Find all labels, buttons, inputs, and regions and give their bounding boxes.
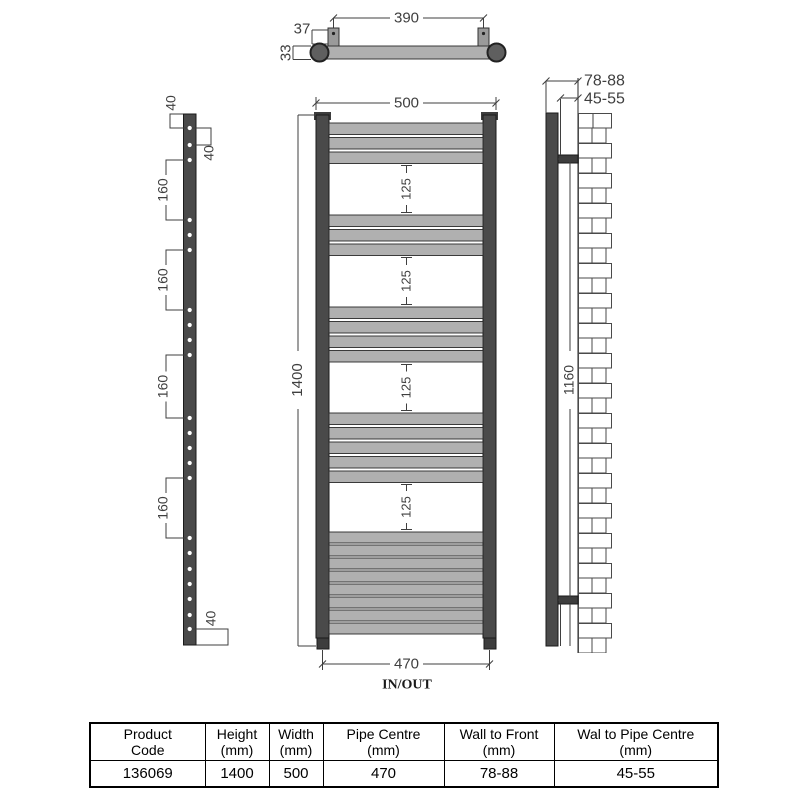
fixing-spacing-label-3: 160 (155, 375, 171, 399)
header-pipe-centre: Pipe Centre(mm) (323, 723, 444, 761)
front-width-dim-label: 500 (394, 95, 419, 112)
wall-to-pipe-centre-label: 45-55 (584, 91, 625, 108)
value-wall-to-pipe-centre: 45-55 (554, 761, 718, 788)
value-pipe-centre: 470 (323, 761, 444, 788)
value-wall-to-front: 78-88 (444, 761, 554, 788)
value-width: 500 (269, 761, 323, 788)
front-view: 500 (289, 95, 500, 693)
inout-label: IN/OUT (382, 678, 432, 693)
fixing-top-offset-label: 40 (163, 95, 179, 111)
wall-side-view: 78-88 45-55 1160 (543, 73, 626, 654)
header-wall-to-front: Wall to Front(mm) (444, 723, 554, 761)
fixing-spacing-label-2: 160 (155, 268, 171, 292)
fixing-spacing-label-4: 160 (155, 496, 171, 520)
fixing-strip (184, 114, 197, 645)
plan-top-rung (318, 46, 498, 59)
fixing-strip-view: 40 40 160 160 160 160 40 (155, 95, 229, 645)
header-height: Height(mm) (205, 723, 269, 761)
front-height-dim-label: 1400 (289, 363, 306, 396)
value-product-code: 136069 (90, 761, 205, 788)
front-gap-label-4: 125 (399, 496, 414, 518)
plan-thickness-label: 33 (278, 44, 295, 61)
plan-right-bracket (478, 28, 489, 47)
fixing-pair-spacing-label: 40 (201, 145, 217, 161)
front-gap-label-2: 125 (399, 270, 414, 292)
plan-width-dim-label: 390 (394, 10, 419, 27)
plan-right-column-end (488, 44, 506, 62)
plan-left-bracket-screw (332, 32, 335, 35)
plan-left-bracket (328, 28, 339, 47)
front-gap-label-1: 125 (399, 178, 414, 200)
wall-to-front-label: 78-88 (584, 73, 625, 90)
spec-table-data-row: 136069 1400 500 470 78-88 45-55 (90, 761, 718, 788)
side-profile-column (546, 113, 558, 646)
front-right-column (483, 115, 496, 638)
spec-table: ProductCode Height(mm) Width(mm) Pipe Ce… (89, 722, 719, 788)
plan-left-column-end (311, 44, 329, 62)
front-gap-label-3: 125 (399, 377, 414, 399)
plan-bracket-depth-label: 37 (294, 21, 311, 38)
header-wall-to-pipe-centre: Wal to Pipe Centre(mm) (554, 723, 718, 761)
front-left-column (316, 115, 329, 638)
front-right-foot (484, 638, 496, 649)
fixing-spacing-label-1: 160 (155, 178, 171, 202)
brick-wall (578, 113, 612, 653)
bracket-centres-label: 1160 (561, 365, 577, 395)
plan-right-bracket-screw (482, 32, 485, 35)
header-width: Width(mm) (269, 723, 323, 761)
diagram-svg: 390 37 33 40 40 (0, 0, 800, 715)
front-pipe-centre-dim-label: 470 (394, 656, 419, 673)
spec-table-header-row: ProductCode Height(mm) Width(mm) Pipe Ce… (90, 723, 718, 761)
towel-rail-technical-drawing: 390 37 33 40 40 (0, 0, 800, 800)
plan-view: 390 37 33 (278, 10, 506, 62)
fixing-bottom-offset-label: 40 (203, 611, 219, 627)
value-height: 1400 (205, 761, 269, 788)
front-left-foot (317, 638, 329, 649)
header-product-code: ProductCode (90, 723, 205, 761)
